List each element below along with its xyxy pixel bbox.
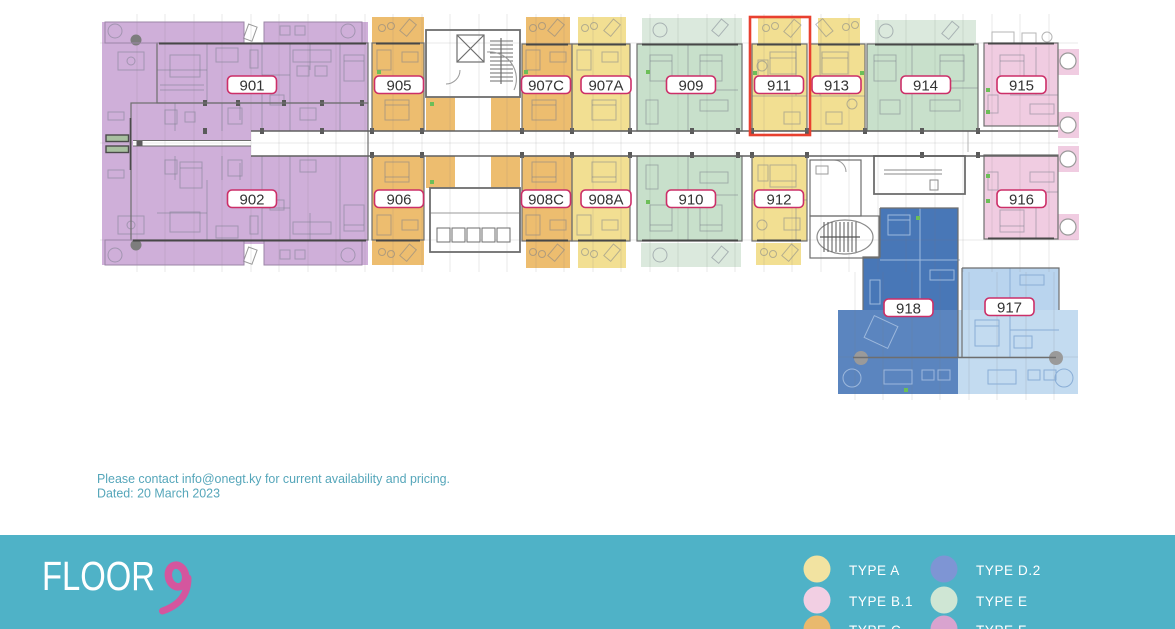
svg-text:TYPE E: TYPE E <box>976 594 1028 609</box>
svg-text:TYPE A: TYPE A <box>849 563 900 578</box>
svg-text:TYPE B.1: TYPE B.1 <box>849 594 913 609</box>
svg-text:908C: 908C <box>528 191 564 208</box>
svg-text:905: 905 <box>386 77 411 94</box>
svg-text:916: 916 <box>1009 191 1034 208</box>
svg-text:FLOOR: FLOOR <box>42 553 155 599</box>
svg-text:913: 913 <box>824 77 849 94</box>
svg-text:907C: 907C <box>528 77 564 94</box>
svg-text:901: 901 <box>239 77 264 94</box>
svg-text:TYPE F: TYPE F <box>976 623 1027 629</box>
svg-text:917: 917 <box>997 299 1022 316</box>
svg-text:902: 902 <box>239 191 264 208</box>
svg-text:907A: 907A <box>588 77 623 94</box>
svg-text:909: 909 <box>678 77 703 94</box>
svg-text:912: 912 <box>766 191 791 208</box>
svg-text:914: 914 <box>913 77 938 94</box>
svg-text:908A: 908A <box>588 191 623 208</box>
svg-text:911: 911 <box>767 77 791 94</box>
svg-text:910: 910 <box>678 191 703 208</box>
svg-text:Please contact info@onegt.ky f: Please contact info@onegt.ky for current… <box>97 471 450 486</box>
svg-text:918: 918 <box>896 300 921 317</box>
svg-text:Dated: 20 March 2023: Dated: 20 March 2023 <box>97 486 220 501</box>
svg-text:915: 915 <box>1009 77 1034 94</box>
svg-text:906: 906 <box>386 191 411 208</box>
svg-text:TYPE D.2: TYPE D.2 <box>976 563 1041 578</box>
svg-text:TYPE C: TYPE C <box>849 623 901 629</box>
